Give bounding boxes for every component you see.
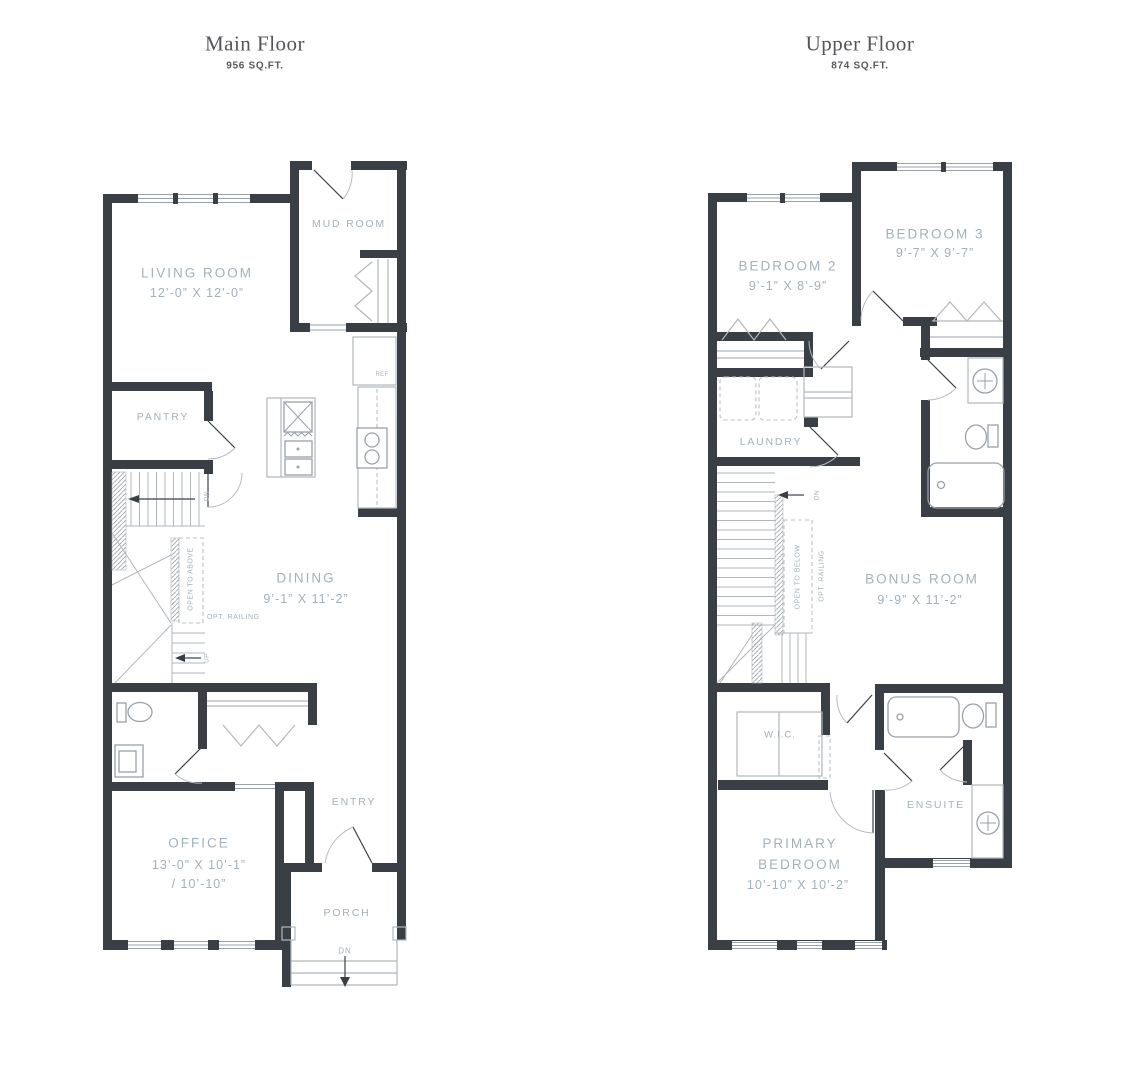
ensuite-window [933, 859, 970, 868]
primary-bedroom-dims: 10’-10” X 10’-2” [747, 878, 849, 892]
office-dims2: / 10’-10” [172, 877, 227, 891]
bath-toilet [966, 425, 999, 449]
office-opening [235, 785, 275, 789]
main-floor-title: Main Floor [205, 32, 305, 57]
bonus-room-dims: 9’-9” X 11’-2” [877, 593, 962, 607]
open-to-above-label: OPEN TO ABOVE [188, 547, 195, 610]
mud-room-closet [355, 259, 388, 323]
primary-bedroom-label: PRIMARY BEDROOM [725, 833, 875, 875]
bedroom2-dims: 9’-1” X 8’-9” [749, 279, 827, 293]
main-floor-plan [95, 155, 415, 1000]
wic-label: W.I.C. [764, 730, 796, 741]
open-to-below-label: OPEN TO BELOW [795, 545, 802, 610]
bath-door [928, 360, 956, 400]
mud-room-door [314, 170, 352, 199]
stove [357, 428, 387, 468]
powder-door [175, 747, 202, 783]
bath-tub [928, 463, 1004, 508]
office-window [128, 940, 255, 950]
main-stairs-dn-label: DN [204, 491, 211, 501]
primary-door [830, 790, 873, 833]
front-door [325, 827, 372, 863]
living-room-label: LIVING ROOM [141, 266, 253, 281]
kitchen-opening [310, 325, 346, 330]
bedroom3-dims: 9’-7” X 9’-7” [896, 246, 974, 260]
bath-sink [968, 358, 1003, 403]
dining-label: DINING [276, 571, 335, 586]
powder-sink [115, 745, 143, 777]
bedroom2-label: BEDROOM 2 [738, 259, 837, 274]
dining-dims: 9’-1” X 11’-2” [263, 592, 348, 606]
upper-stairs-dn-label: DN [814, 490, 821, 500]
mud-room-label: MUD ROOM [312, 218, 386, 230]
living-room-window [138, 193, 250, 204]
bedroom2-door [809, 341, 849, 369]
primary-bedroom-window [732, 940, 882, 950]
floorplan-page: Main Floor 956 SQ.FT. Upper Floor 874 SQ… [0, 0, 1143, 1080]
powder-toilet [117, 703, 152, 723]
coat-closet [207, 701, 308, 746]
main-stairs-up-label: UP [204, 653, 211, 663]
ensuite-door [884, 743, 967, 790]
office-dims: 13’-0” X 10’-1” [152, 858, 246, 872]
ensuite-toilet [963, 703, 997, 728]
porch-label: PORCH [324, 907, 371, 919]
fridge-label: REF [376, 372, 389, 378]
bedroom3-door [861, 291, 903, 321]
ensuite-label: ENSUITE [907, 799, 965, 811]
main-opt-railing-label: OPT. RAILING [207, 613, 265, 623]
pantry-label: PANTRY [137, 411, 189, 423]
bedroom3-label: BEDROOM 3 [885, 227, 984, 242]
entry-label: ENTRY [332, 796, 376, 808]
main-walls [103, 161, 407, 987]
living-room-dims: 12’-0” X 12’-0” [150, 286, 244, 300]
pantry-door [208, 421, 235, 459]
upper-floor-title: Upper Floor [806, 32, 915, 57]
office-label: OFFICE [168, 836, 230, 851]
porch-steps [282, 927, 406, 987]
basement-stair-door [208, 473, 242, 507]
fridge [353, 337, 396, 385]
kitchen-island [267, 398, 315, 477]
bonus-room-label: BONUS ROOM [865, 572, 979, 587]
bedroom3-window [897, 162, 993, 172]
bedroom2-window [747, 193, 820, 203]
ensuite-tub [888, 697, 959, 737]
upper-floor-area: 874 SQ.FT. [831, 61, 889, 72]
washer-dryer [720, 377, 797, 420]
porch-dn-label: DN [338, 947, 352, 956]
upper-opt-railing-label: OPT. RAILING [819, 550, 826, 602]
ensuite-sink [972, 785, 1003, 858]
wic-interior [737, 712, 830, 778]
laundry-label: LAUNDRY [740, 436, 803, 448]
bedroom3-closet [930, 302, 1003, 337]
main-floor-area: 956 SQ.FT. [226, 61, 284, 72]
suite-entry-door [837, 695, 872, 723]
